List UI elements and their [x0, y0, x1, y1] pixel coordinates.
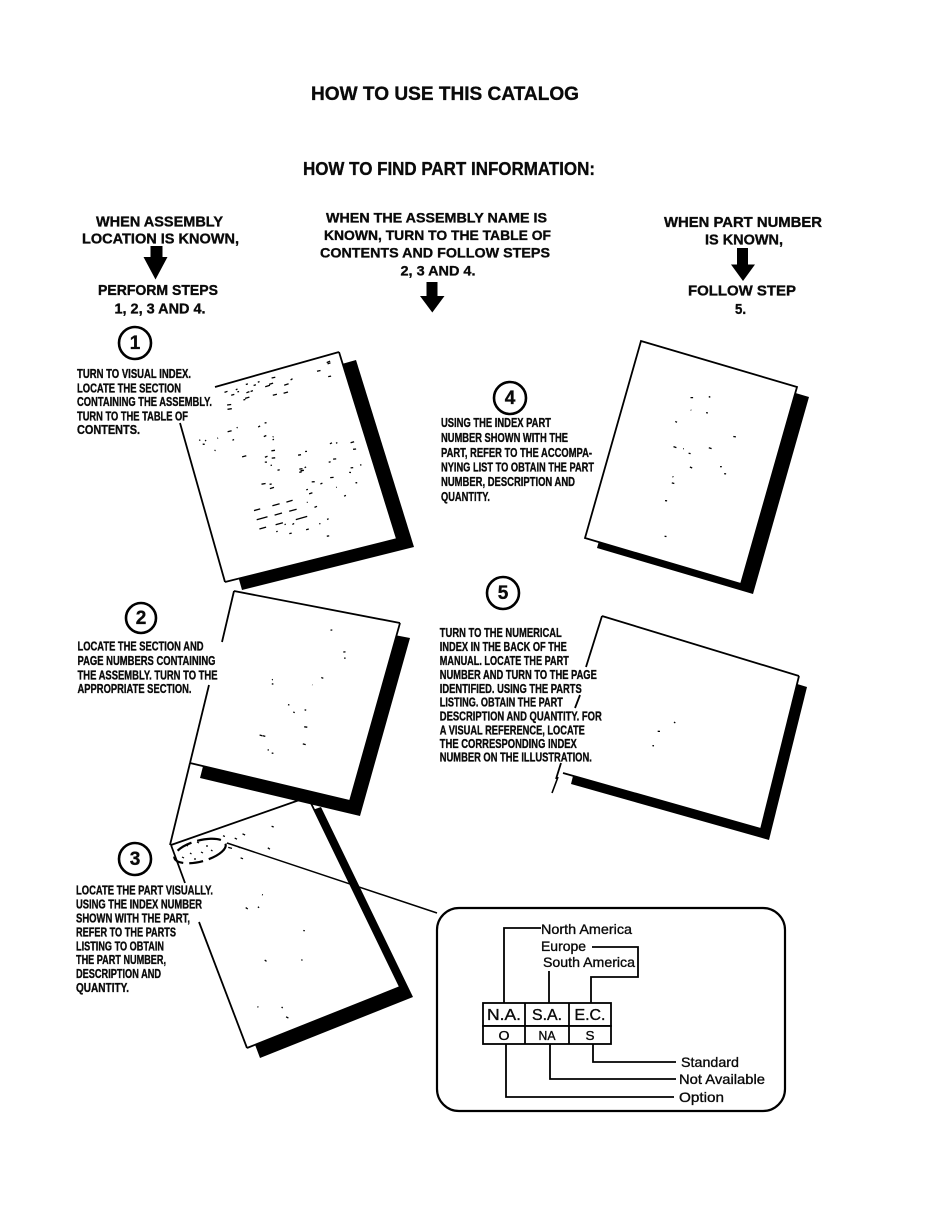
svg-text:THE ASSEMBLY. TURN TO THE: THE ASSEMBLY. TURN TO THE: [78, 668, 218, 682]
svg-text:NUMBER, DESCRIPTION AND: NUMBER, DESCRIPTION AND: [441, 475, 575, 489]
svg-text:DESCRIPTION AND QUANTITY. FOR: DESCRIPTION AND QUANTITY. FOR: [440, 710, 602, 724]
svg-text:CONTAINING THE ASSEMBLY.: CONTAINING THE ASSEMBLY.: [77, 395, 212, 409]
svg-text:LISTING. OBTAIN THE PART: LISTING. OBTAIN THE PART: [440, 696, 563, 710]
svg-text:MANUAL. LOCATE THE PART: MANUAL. LOCATE THE PART: [440, 654, 569, 668]
svg-text:2, 3 AND 4.: 2, 3 AND 4.: [401, 262, 476, 278]
svg-text:LOCATE THE SECTION AND: LOCATE THE SECTION AND: [78, 640, 204, 654]
svg-text:TURN TO THE NUMERICAL: TURN TO THE NUMERICAL: [440, 626, 562, 640]
svg-text:USING THE INDEX NUMBER: USING THE INDEX NUMBER: [76, 898, 202, 912]
svg-text:5.: 5.: [735, 302, 746, 318]
svg-text:LOCATE THE PART VISUALLY.: LOCATE THE PART VISUALLY.: [76, 884, 213, 898]
svg-text:SHOWN WITH THE PART,: SHOWN WITH THE PART,: [76, 912, 190, 926]
svg-text:1: 1: [130, 333, 141, 354]
svg-text:USING THE INDEX PART: USING THE INDEX PART: [441, 416, 551, 430]
svg-text:N.A.: N.A.: [487, 1007, 521, 1024]
svg-text:NYING LIST TO OBTAIN THE PART: NYING LIST TO OBTAIN THE PART: [441, 461, 594, 475]
svg-text:3: 3: [130, 849, 141, 870]
svg-text:TURN TO THE TABLE OF: TURN TO THE TABLE OF: [77, 409, 188, 423]
svg-text:THE PART NUMBER,: THE PART NUMBER,: [76, 953, 166, 967]
svg-text:FOLLOW STEP: FOLLOW STEP: [688, 284, 796, 300]
svg-text:2: 2: [136, 608, 147, 629]
svg-text:NUMBER AND TURN TO THE PAGE: NUMBER AND TURN TO THE PAGE: [440, 668, 597, 682]
svg-text:Option: Option: [679, 1089, 724, 1105]
svg-text:TURN TO VISUAL INDEX.: TURN TO VISUAL INDEX.: [77, 367, 191, 381]
svg-text:LOCATION IS KNOWN,: LOCATION IS KNOWN,: [82, 232, 239, 248]
svg-text:QUANTITY.: QUANTITY.: [76, 981, 129, 995]
svg-text:4: 4: [505, 388, 516, 409]
svg-text:Not Available: Not Available: [679, 1071, 765, 1087]
svg-text:LOCATE THE SECTION: LOCATE THE SECTION: [77, 381, 181, 395]
svg-text:NA: NA: [539, 1029, 557, 1043]
svg-text:A VISUAL REFERENCE, LOCATE: A VISUAL REFERENCE, LOCATE: [440, 723, 585, 737]
svg-text:CONTENTS.: CONTENTS.: [77, 423, 140, 437]
svg-text:WHEN THE ASSEMBLY NAME IS: WHEN THE ASSEMBLY NAME IS: [326, 210, 547, 226]
svg-text:Standard: Standard: [681, 1054, 739, 1070]
svg-text:PART, REFER TO THE ACCOMPA-: PART, REFER TO THE ACCOMPA-: [441, 446, 592, 460]
svg-text:South America: South America: [543, 954, 635, 970]
svg-text:PERFORM STEPS: PERFORM STEPS: [98, 283, 218, 299]
svg-text:WHEN ASSEMBLY: WHEN ASSEMBLY: [96, 215, 223, 231]
svg-text:Europe: Europe: [541, 938, 586, 954]
svg-text:5: 5: [498, 583, 509, 604]
svg-text:North America: North America: [541, 921, 632, 937]
svg-text:O: O: [499, 1029, 510, 1043]
svg-text:E.C.: E.C.: [575, 1007, 606, 1024]
svg-text:1, 2, 3 AND 4.: 1, 2, 3 AND 4.: [115, 302, 206, 318]
svg-text:KNOWN, TURN TO THE TABLE OF: KNOWN, TURN TO THE TABLE OF: [324, 227, 551, 243]
svg-text:PAGE NUMBERS CONTAINING: PAGE NUMBERS CONTAINING: [78, 654, 216, 668]
svg-text:APPROPRIATE SECTION.: APPROPRIATE SECTION.: [78, 682, 192, 696]
svg-text:S.A.: S.A.: [532, 1007, 562, 1024]
svg-text:DESCRIPTION AND: DESCRIPTION AND: [76, 967, 161, 981]
svg-text:NUMBER ON THE ILLUSTRATION.: NUMBER ON THE ILLUSTRATION.: [440, 751, 592, 765]
svg-text:HOW TO USE THIS CATALOG: HOW TO USE THIS CATALOG: [311, 83, 579, 105]
svg-text:LISTING TO OBTAIN: LISTING TO OBTAIN: [76, 939, 164, 953]
svg-text:THE CORRESPONDING INDEX: THE CORRESPONDING INDEX: [440, 737, 577, 751]
svg-text:INDEX IN THE BACK OF THE: INDEX IN THE BACK OF THE: [440, 640, 567, 654]
svg-text:WHEN PART NUMBER: WHEN PART NUMBER: [664, 215, 823, 231]
svg-text:QUANTITY.: QUANTITY.: [441, 490, 490, 504]
svg-text:IS KNOWN,: IS KNOWN,: [705, 233, 783, 249]
svg-text:CONTENTS AND FOLLOW STEPS: CONTENTS AND FOLLOW STEPS: [320, 245, 550, 261]
svg-text:REFER TO THE PARTS: REFER TO THE PARTS: [76, 925, 176, 939]
svg-text:HOW TO FIND PART INFORMATION:: HOW TO FIND PART INFORMATION:: [303, 159, 595, 179]
svg-text:IDENTIFIED. USING THE PARTS: IDENTIFIED. USING THE PARTS: [440, 682, 582, 696]
svg-text:NUMBER SHOWN WITH THE: NUMBER SHOWN WITH THE: [441, 431, 568, 445]
svg-text:S: S: [586, 1029, 595, 1043]
